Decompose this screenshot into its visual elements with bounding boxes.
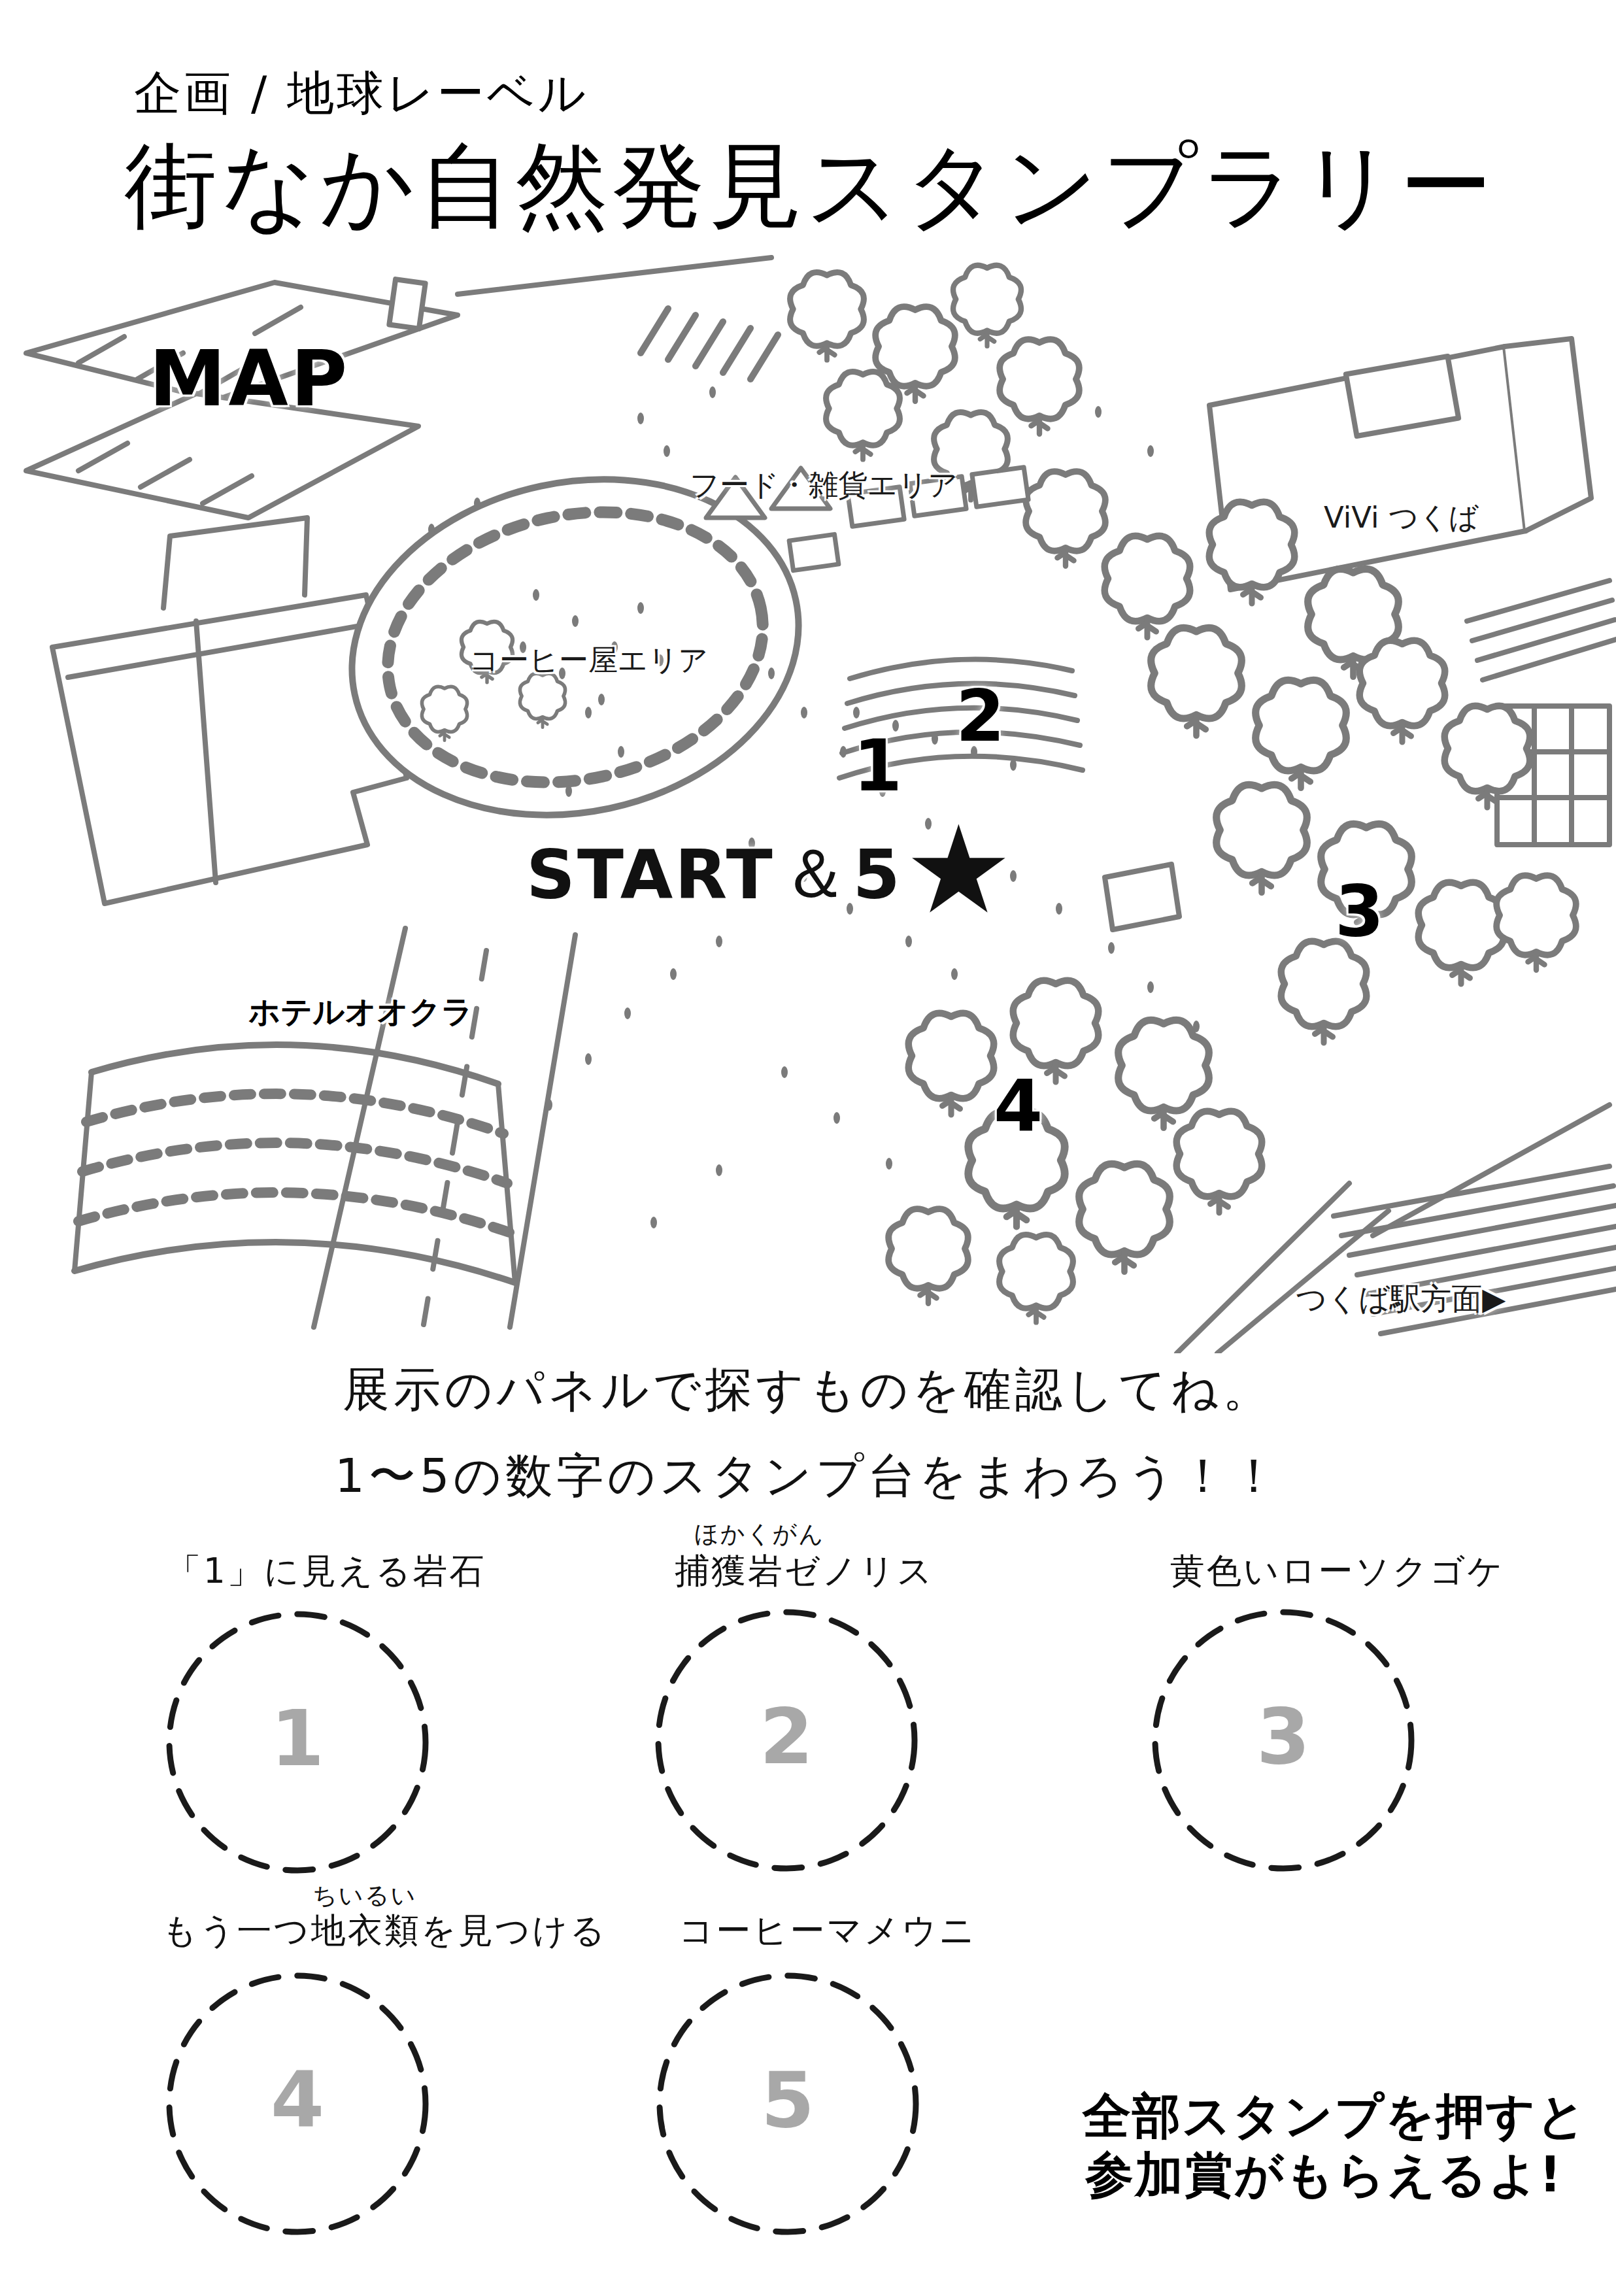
map-marker-3: 3 [1335, 876, 1384, 947]
station-arrow-icon: ▶ [1482, 1281, 1506, 1317]
stamp-5-number: 5 [650, 2061, 925, 2138]
stamp-2-label: 捕獲岩ゼノリス [675, 1548, 934, 1595]
stamp-5-label: コーヒーマメウニ [679, 1908, 976, 1955]
start-five: 5 [853, 835, 900, 915]
start-marker: START ＆ 5 ★ [526, 819, 1013, 931]
map-area-hotel: ホテルオオクラ [248, 991, 473, 1033]
instruction-line-1: 展示のパネルで探すものを確認してね。 [0, 1359, 1616, 1421]
instruction-line-2: 1〜5の数字のスタンプ台をまわろう！！ [0, 1445, 1616, 1508]
map-area-coffee: コーヒー屋エリア [469, 641, 708, 680]
star-icon: ★ [904, 809, 1013, 931]
stamp-4-number: 4 [160, 2061, 435, 2138]
start-ampersand: ＆ [781, 829, 849, 920]
map-area-food: フード・雑貨エリア [690, 465, 958, 505]
stamp-4-label: もう一つ地衣類を見つける [162, 1908, 607, 1955]
stamp-2-furigana: ほかくがん [694, 1518, 824, 1551]
page-title: 街なか自然発見スタンプラリー [124, 124, 1496, 250]
map-area-vivi: ViVi つくば [1324, 498, 1479, 537]
organizer-line: 企画 / 地球レーベル [134, 62, 588, 125]
map-area-station: つくば駅方面▶ [1296, 1279, 1506, 1320]
map-marker-2: 2 [956, 681, 1005, 752]
stamp-1-number: 1 [160, 1700, 435, 1777]
start-label: START [526, 835, 775, 915]
stamp-3-number: 3 [1146, 1698, 1421, 1775]
stamp-rally-flyer: 企画 / 地球レーベル 街なか自然発見スタンプラリー [0, 0, 1616, 2296]
reward-line-1: 全部スタンプを押すと [1083, 2084, 1587, 2150]
map-marker-1: 1 [853, 731, 902, 802]
map-wordmark: MAP [149, 333, 350, 424]
station-label: つくば駅方面 [1296, 1281, 1482, 1317]
stamp-2-number: 2 [649, 1698, 924, 1775]
stamp-1-label: 「1」に見える岩石 [167, 1548, 486, 1595]
map-marker-4: 4 [994, 1071, 1043, 1141]
reward-line-2: 参加賞がもらえるよ! [1085, 2143, 1562, 2208]
stamp-3-label: 黄色いローソクゴケ [1170, 1548, 1504, 1595]
